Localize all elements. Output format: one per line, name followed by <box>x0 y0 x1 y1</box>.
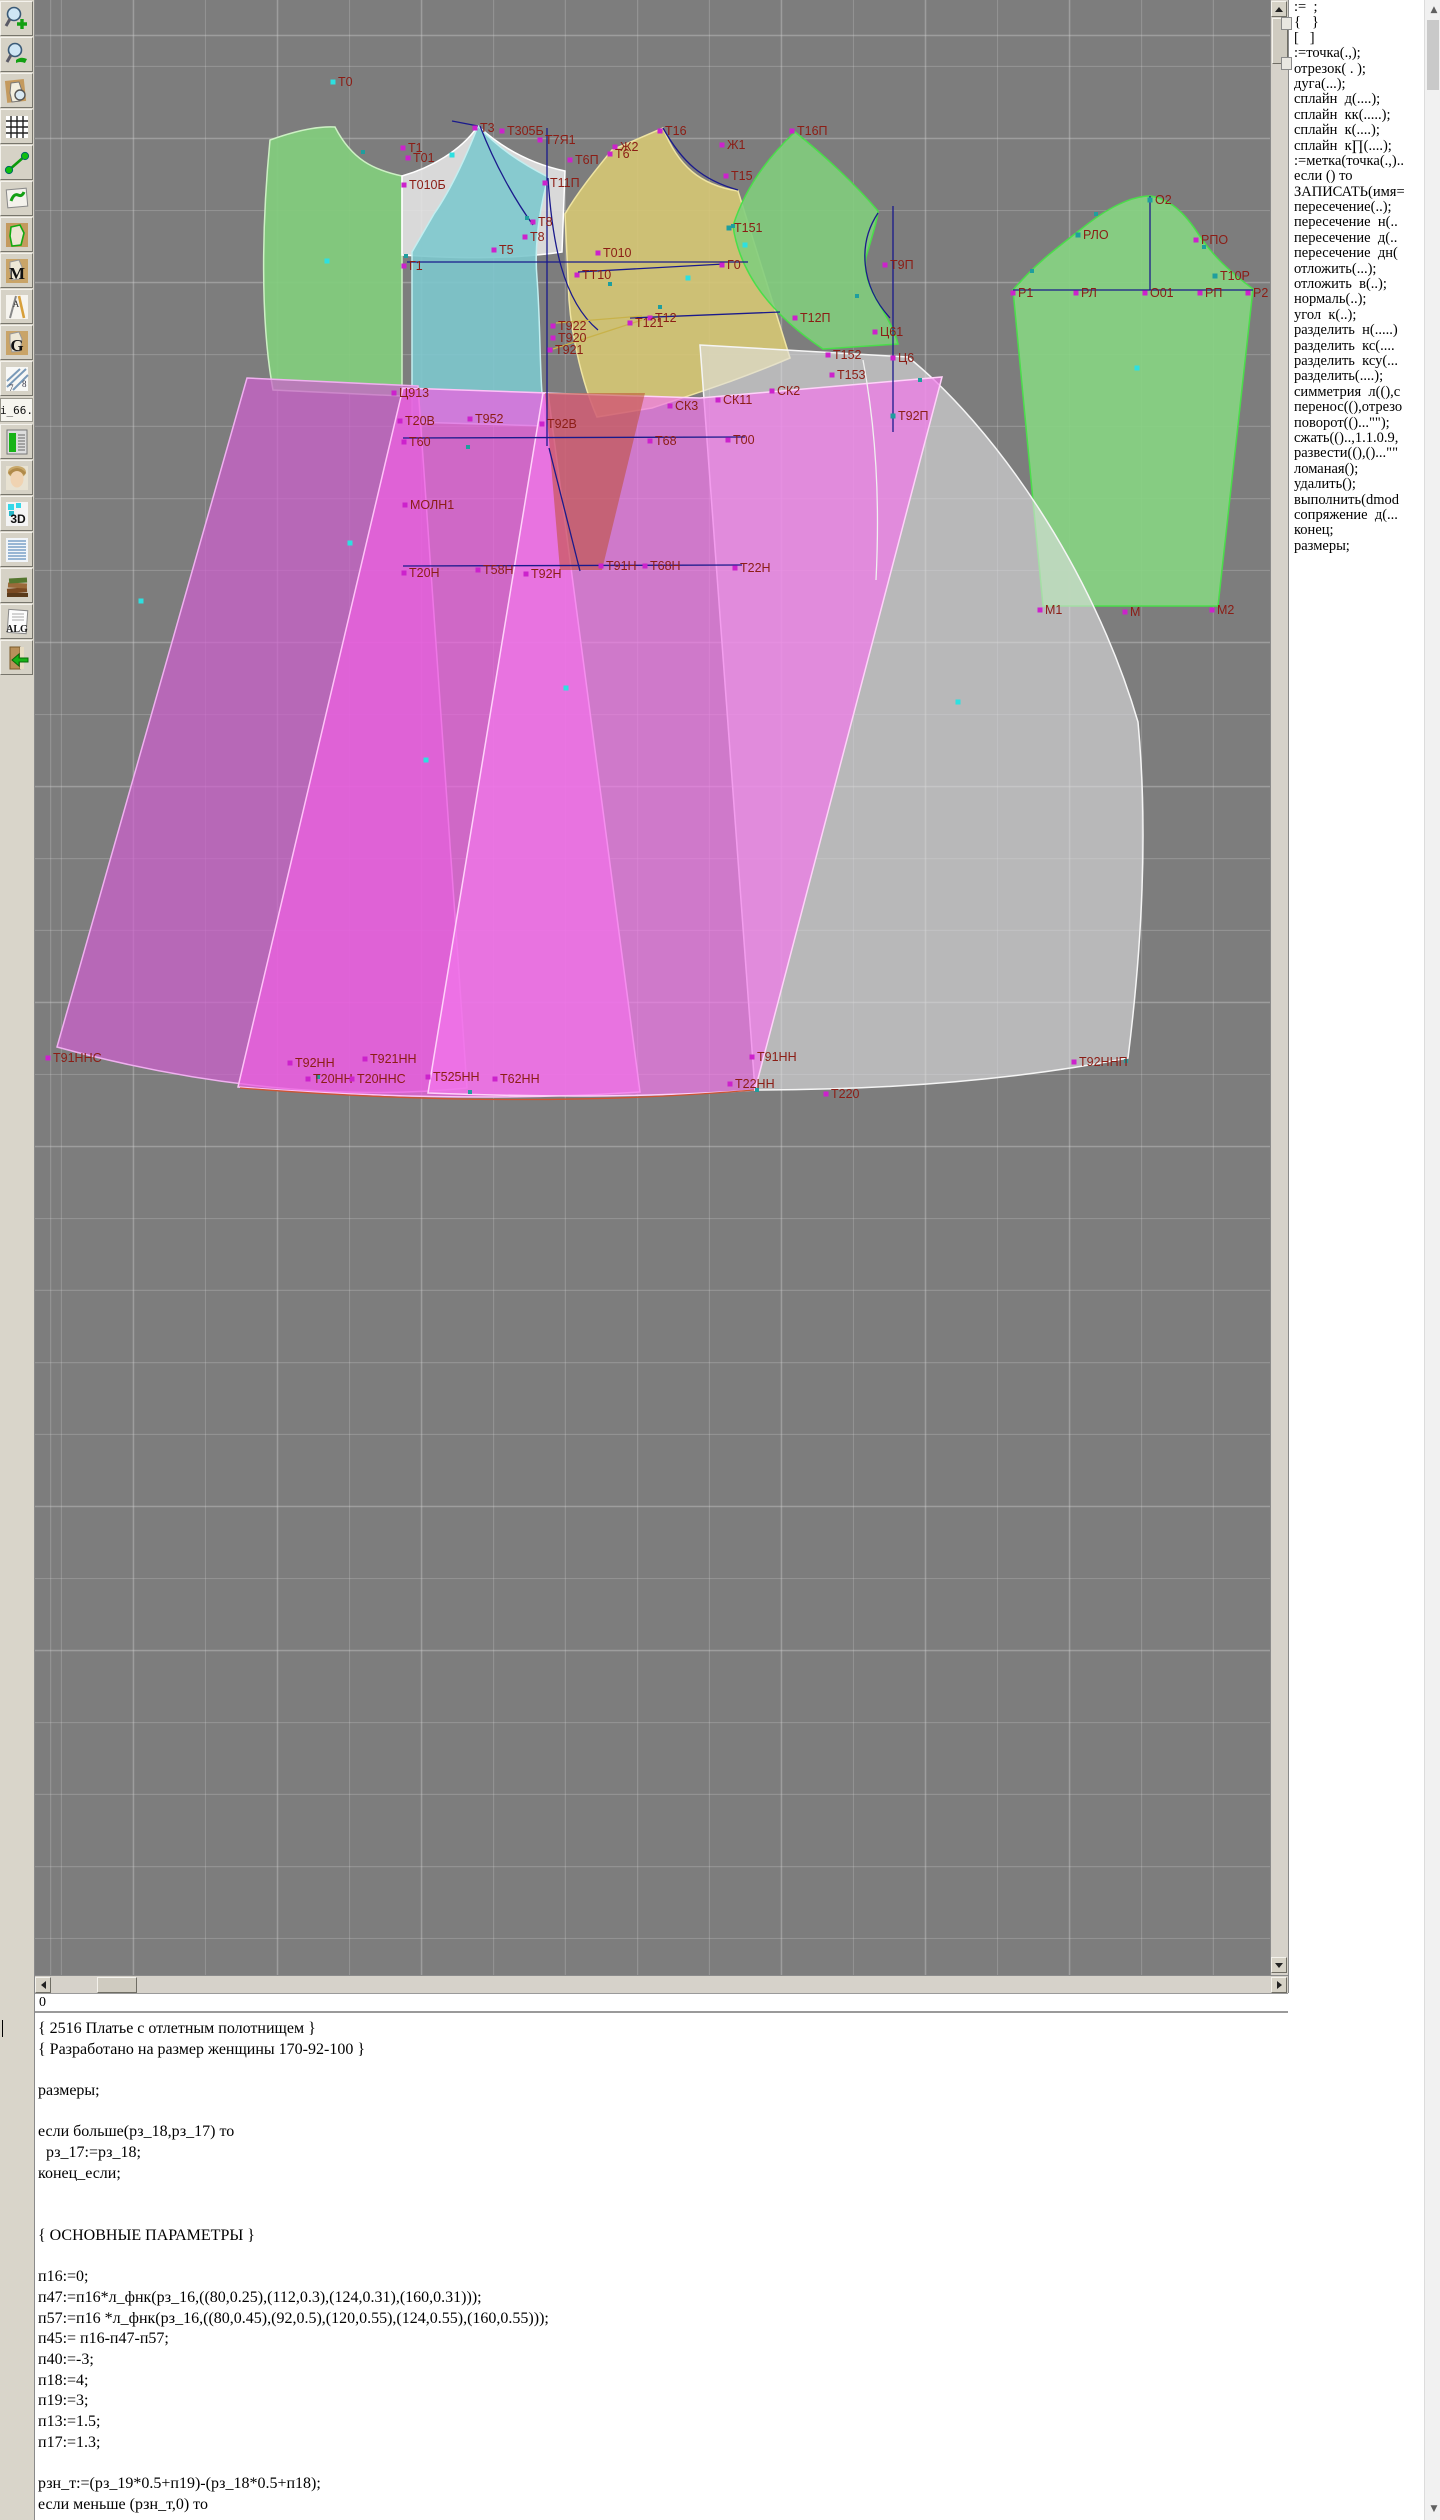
pattern-point[interactable]: Т91НН <box>750 1050 797 1064</box>
point-label: Т16П <box>797 124 828 138</box>
horizontal-scroll-thumb[interactable] <box>97 1977 137 1993</box>
operator-item[interactable]: размеры; <box>1289 539 1424 554</box>
operator-item[interactable]: разделить кс(.... <box>1289 339 1424 354</box>
operator-item[interactable]: ЗАПИСАТЬ(имя= <box>1289 185 1424 200</box>
point-label: РПО <box>1201 233 1228 247</box>
pattern-point[interactable]: Т305Б <box>500 124 544 138</box>
operator-item[interactable]: если () то <box>1289 169 1424 184</box>
size-table-icon[interactable] <box>0 532 33 567</box>
code-line[interactable]: п45:= п16-п47-п57; <box>35 2329 1368 2350</box>
operator-item[interactable]: пересечение д(.. <box>1289 231 1424 246</box>
point-label: Т10Р <box>1220 269 1250 283</box>
pattern-point[interactable]: Г1 <box>402 259 423 273</box>
operator-item[interactable]: перенос((),отрезо <box>1289 400 1424 415</box>
svg-text:А: А <box>12 299 19 309</box>
code-line[interactable] <box>35 2205 1368 2226</box>
point-label: Т152 <box>833 348 862 362</box>
point-label: Т6П <box>575 153 599 167</box>
point-label: Т16 <box>665 124 687 138</box>
code-line[interactable]: { 2516 Платье с отлетным полотнищем } <box>35 2019 1368 2040</box>
pattern-point[interactable]: Т62НН <box>493 1072 540 1086</box>
point-label: Ц913 <box>399 386 429 400</box>
operator-item[interactable]: разделить(....); <box>1289 369 1424 384</box>
point-label: Ц61 <box>880 325 903 339</box>
pattern-drawing: Т0Т3Т305БТ7Я1Т1Т01Т010БТ11ПТ6ПТ8Т8Т5Г1Ж2… <box>35 0 1270 1975</box>
piece-reference-dot <box>424 758 429 763</box>
code-line[interactable]: п18:=4; <box>35 2371 1368 2392</box>
operator-item[interactable]: пересечение(..); <box>1289 200 1424 215</box>
point-label: Т15 <box>731 169 753 183</box>
operator-item[interactable]: нормаль(..); <box>1289 292 1424 307</box>
operator-item[interactable]: разделить н(.....) <box>1289 323 1424 338</box>
piece-reference-dot <box>564 686 569 691</box>
point-label: Т151 <box>734 221 763 235</box>
piece-reference-dot <box>1135 366 1140 371</box>
operator-item[interactable]: конец; <box>1289 523 1424 538</box>
point-label: Ц6 <box>898 351 914 365</box>
point-label: Т3 <box>480 121 495 135</box>
operator-item[interactable]: сплайн к(....); <box>1289 123 1424 138</box>
operator-item[interactable]: отложить в(..); <box>1289 277 1424 292</box>
chart-clipboard-icon[interactable] <box>0 424 33 459</box>
piece-reference-dot <box>686 276 691 281</box>
point-label: Т92Н <box>531 567 562 581</box>
point-label: СК2 <box>777 384 800 398</box>
svg-text:G: G <box>10 336 23 355</box>
operator-item[interactable]: отрезок( . ); <box>1289 62 1424 77</box>
point-label: РЛ <box>1081 286 1097 300</box>
point-label: Ж1 <box>727 138 746 152</box>
svg-text:7: 7 <box>9 383 14 393</box>
alg-document-icon[interactable]: ALG <box>0 604 33 639</box>
point-label: Т00 <box>733 433 755 447</box>
contour-icon[interactable] <box>0 217 33 252</box>
point-label: Т921НН <box>370 1052 417 1066</box>
pattern-point[interactable]: Т15 <box>724 169 753 183</box>
pattern-point[interactable]: М <box>1123 605 1141 619</box>
notch-point <box>404 254 408 258</box>
point-label: М <box>1130 605 1140 619</box>
operators-panel: := ;{ }[ ]:=точка(.,);отрезок( . );дуга(… <box>1288 0 1424 1993</box>
point-label: Т20ННС <box>357 1072 406 1086</box>
zoom-in-icon[interactable] <box>0 1 33 36</box>
operator-item[interactable]: угол к(..); <box>1289 308 1424 323</box>
operator-item[interactable]: пересечение н(.. <box>1289 215 1424 230</box>
code-line[interactable] <box>35 2247 1368 2268</box>
point-label: М2 <box>1217 603 1234 617</box>
point-label: Т91НН <box>757 1050 797 1064</box>
operator-item[interactable]: отложить(...); <box>1289 262 1424 277</box>
point-label: Т01 <box>413 151 435 165</box>
notch-point <box>1030 269 1034 273</box>
point-label: Т7Я1 <box>545 133 576 147</box>
code-line[interactable] <box>35 2185 1368 2206</box>
point-label: Т921 <box>555 343 584 357</box>
left-toolbar: MАG87i_66.3DALG <box>0 0 35 2520</box>
point-label: Т8 <box>538 215 553 229</box>
notch-point <box>1094 212 1098 216</box>
notch-point <box>468 1090 472 1094</box>
code-line[interactable] <box>35 2060 1368 2081</box>
point-label: М1 <box>1045 603 1062 617</box>
pattern-point[interactable]: Т92НН <box>288 1056 335 1070</box>
notch-point <box>918 378 922 382</box>
notch-point <box>466 445 470 449</box>
point-label: Т68 <box>655 434 677 448</box>
code-line[interactable]: п17:=1.3; <box>35 2433 1368 2454</box>
code-line[interactable] <box>35 2102 1368 2123</box>
measure-segment-icon[interactable] <box>0 145 33 180</box>
text-caret <box>2 2020 3 2037</box>
scroll-up-icon[interactable] <box>1271 1 1287 17</box>
code-line[interactable]: рзн_т:=(рз_19*0.5+п19)-(рз_18*0.5+п18); <box>35 2474 1368 2495</box>
point-label: Р1 <box>1018 286 1033 300</box>
notch-point <box>525 216 529 220</box>
point-label: Т68Н <box>650 559 681 573</box>
pattern-point[interactable]: Т921 <box>548 343 584 357</box>
operator-item[interactable]: пересечение дн( <box>1289 246 1424 261</box>
point-label: Т91ННС <box>53 1051 102 1065</box>
canvas-vertical-scrollbar[interactable] <box>1270 0 1288 1975</box>
piece-reference-dot <box>450 153 455 158</box>
piece-preview-icon[interactable] <box>0 73 33 108</box>
scroll-right-icon[interactable] <box>1271 1977 1287 1993</box>
point-label: Т58Н <box>483 563 514 577</box>
status-bar: 0 Рз Мл <box>35 1993 1390 2012</box>
operator-item[interactable]: сжать(()..,1.1.0.9, <box>1289 431 1424 446</box>
operator-item[interactable]: :=точка(.,); <box>1289 46 1424 61</box>
pattern-canvas[interactable]: Т0Т3Т305БТ7Я1Т1Т01Т010БТ11ПТ6ПТ8Т8Т5Г1Ж2… <box>35 0 1270 1975</box>
status-value: 0 <box>39 1995 46 2011</box>
point-label: Т0 <box>338 75 353 89</box>
point-label: Т11П <box>550 176 580 190</box>
piece-reference-dot <box>325 259 330 264</box>
piece-reference-dot <box>956 700 961 705</box>
operator-item[interactable]: удалить(); <box>1289 477 1424 492</box>
code-line[interactable]: п19:=3; <box>35 2391 1368 2412</box>
point-label: О2 <box>1155 193 1172 207</box>
code-line[interactable]: п40:=-3; <box>35 2350 1368 2371</box>
point-label: Г0 <box>727 258 741 272</box>
pattern-point[interactable]: Т20НН <box>306 1072 353 1086</box>
code-line[interactable]: конец_если; <box>35 2164 1368 2185</box>
pattern-point[interactable]: Т6П <box>568 153 599 167</box>
scroll-up-icon[interactable]: ▲ <box>1426 2 1440 19</box>
panel-scrollbar[interactable]: ▲ ▼ <box>1424 0 1440 2520</box>
operator-item[interactable]: :=метка(точка(.,).. <box>1289 154 1424 169</box>
3d-icon[interactable]: 3D <box>0 496 33 531</box>
notch-point <box>361 150 365 154</box>
piece-reference-dot <box>139 599 144 604</box>
point-label: Т20НН <box>313 1072 353 1086</box>
back-bodice[interactable] <box>264 127 402 396</box>
pattern-point[interactable]: Т92ННП <box>1072 1055 1128 1069</box>
notch-point <box>658 305 662 309</box>
point-label: СК11 <box>723 393 752 407</box>
operator-item[interactable]: дуга(...); <box>1289 77 1424 92</box>
point-label: Т5 <box>499 243 514 257</box>
operator-item[interactable]: развести((),()..."" <box>1289 446 1424 461</box>
splitter-handle[interactable] <box>1281 57 1292 70</box>
point-label: Т525НН <box>433 1070 480 1084</box>
svg-text:8: 8 <box>22 379 27 389</box>
point-label: Т010Б <box>409 178 446 192</box>
code-line[interactable]: рз_17:=рз_18; <box>35 2143 1368 2164</box>
grid-icon[interactable] <box>0 109 33 144</box>
point-label: Т010 <box>603 246 632 260</box>
panel-bottom-filler <box>1288 1993 1424 2520</box>
notch-point <box>855 294 859 298</box>
scroll-down-icon[interactable] <box>1271 1957 1287 1973</box>
point-label: Т60 <box>409 435 431 449</box>
code-line[interactable]: { ОСНОВНЫЕ ПАРАМЕТРЫ } <box>35 2226 1368 2247</box>
point-label: Т92ННП <box>1079 1055 1128 1069</box>
point-label: Т92П <box>898 409 929 423</box>
code-line[interactable]: если больше(рз_18,рз_17) то <box>35 2122 1368 2143</box>
point-label: Т6 <box>615 147 630 161</box>
point-label: МОЛН1 <box>410 498 454 512</box>
point-label: Т62НН <box>500 1072 540 1086</box>
operator-item[interactable]: выполнить(dmod <box>1289 493 1424 508</box>
code-line[interactable]: п13:=1.5; <box>35 2412 1368 2433</box>
pattern-point[interactable]: Т22НН <box>728 1077 775 1091</box>
piece-reference-dot <box>743 243 748 248</box>
shoulder-segment <box>452 121 478 126</box>
operator-item[interactable]: := ; <box>1289 0 1424 15</box>
pattern-point[interactable]: Т91ННС <box>46 1051 102 1065</box>
operator-item[interactable]: сопряжение д(... <box>1289 508 1424 523</box>
notch-point <box>608 282 612 286</box>
point-label: О01 <box>1150 286 1174 300</box>
pattern-point[interactable]: Ж1 <box>720 138 746 152</box>
pattern-point[interactable]: Т921НН <box>363 1052 417 1066</box>
point-label: СК3 <box>675 399 698 413</box>
operator-item[interactable]: сплайн кк(.....); <box>1289 108 1424 123</box>
point-label: Т305Б <box>507 124 544 138</box>
point-label: Г1 <box>409 259 423 273</box>
operator-item[interactable]: симметрия л((),с <box>1289 385 1424 400</box>
svg-text:M: M <box>8 264 24 283</box>
sketch-icon[interactable] <box>0 181 33 216</box>
point-label: Т121 <box>635 316 664 330</box>
code-line[interactable]: п47:=п16*л_фнк(рз_16,((80,0.25),(112,0.3… <box>35 2288 1368 2309</box>
pattern-point[interactable]: Т0 <box>331 75 353 89</box>
point-label: Т91Н <box>606 559 637 573</box>
splitter-handle[interactable] <box>1281 17 1292 30</box>
ruler-icon[interactable]: 87 <box>0 361 33 396</box>
code-line[interactable]: п57:=п16 *л_фнк(рз_16,((80,0.45),(92,0.5… <box>35 2309 1368 2330</box>
books-icon[interactable] <box>0 568 33 603</box>
point-label: Т153 <box>837 368 866 382</box>
panel-scroll-thumb[interactable] <box>1427 20 1439 90</box>
scroll-down-icon[interactable]: ▼ <box>1426 2501 1440 2518</box>
pattern-point[interactable]: Т010Б <box>402 178 446 192</box>
code-line[interactable] <box>35 2453 1368 2474</box>
pattern-point[interactable]: Т9П <box>883 258 914 272</box>
code-line[interactable]: п16:=0; <box>35 2267 1368 2288</box>
point-label: Т8 <box>530 230 545 244</box>
operator-item[interactable]: разделить ксу(... <box>1289 354 1424 369</box>
drafting-tools-icon[interactable]: А <box>0 289 33 324</box>
pattern-point[interactable]: Т525НН <box>426 1070 480 1084</box>
pattern-g-icon[interactable]: G <box>0 325 33 360</box>
point-label: Т20Н <box>409 566 440 580</box>
piece-reference-dot <box>348 541 353 546</box>
operator-item[interactable]: сплайн к∏(....); <box>1289 139 1424 154</box>
point-label: Т22НН <box>735 1077 775 1091</box>
code-line[interactable]: размеры; <box>35 2081 1368 2102</box>
point-label: Т20В <box>405 414 435 428</box>
operator-item[interactable]: ломаная(); <box>1289 462 1424 477</box>
scroll-left-icon[interactable] <box>35 1977 51 1993</box>
point-label: РП <box>1205 286 1222 300</box>
point-label: Т92В <box>547 417 577 431</box>
point-label: Т92НН <box>295 1056 335 1070</box>
import-book-icon[interactable] <box>0 640 33 675</box>
point-label: Т220 <box>831 1087 860 1101</box>
zoom-view-icon[interactable] <box>0 37 33 72</box>
point-label: Т9П <box>890 258 914 272</box>
code-line[interactable]: { Разработано на размер женщины 170-92-1… <box>35 2040 1368 2061</box>
point-label: Т12П <box>800 311 831 325</box>
model-photo-icon[interactable] <box>0 460 33 495</box>
svg-text:ALG: ALG <box>6 624 28 635</box>
pattern-point[interactable]: МОЛН1 <box>403 498 455 512</box>
algorithm-code-editor[interactable]: { 2516 Платье с отлетным полотнищем }{ Р… <box>35 2012 1368 2520</box>
code-line[interactable]: если меньше (рзн_т,0) то <box>35 2495 1368 2516</box>
pattern-m-icon[interactable]: M <box>0 253 33 288</box>
operator-item[interactable]: сплайн д(....); <box>1289 92 1424 107</box>
svg-text:3D: 3D <box>10 512 26 526</box>
point-label: Р2 <box>1253 286 1268 300</box>
point-label: ТТ10 <box>582 268 611 282</box>
operator-item[interactable]: поворот(()...""); <box>1289 416 1424 431</box>
operator-item[interactable]: { } <box>1289 15 1424 30</box>
point-label: Т952 <box>475 412 504 426</box>
file-name-label: i_66. <box>0 398 33 422</box>
operator-item[interactable]: [ ] <box>1289 31 1424 46</box>
canvas-horizontal-scrollbar[interactable] <box>35 1975 1288 1993</box>
pattern-point[interactable]: Т20ННС <box>350 1072 406 1086</box>
point-label: РЛО <box>1083 228 1109 242</box>
point-label: Т22Н <box>740 561 771 575</box>
